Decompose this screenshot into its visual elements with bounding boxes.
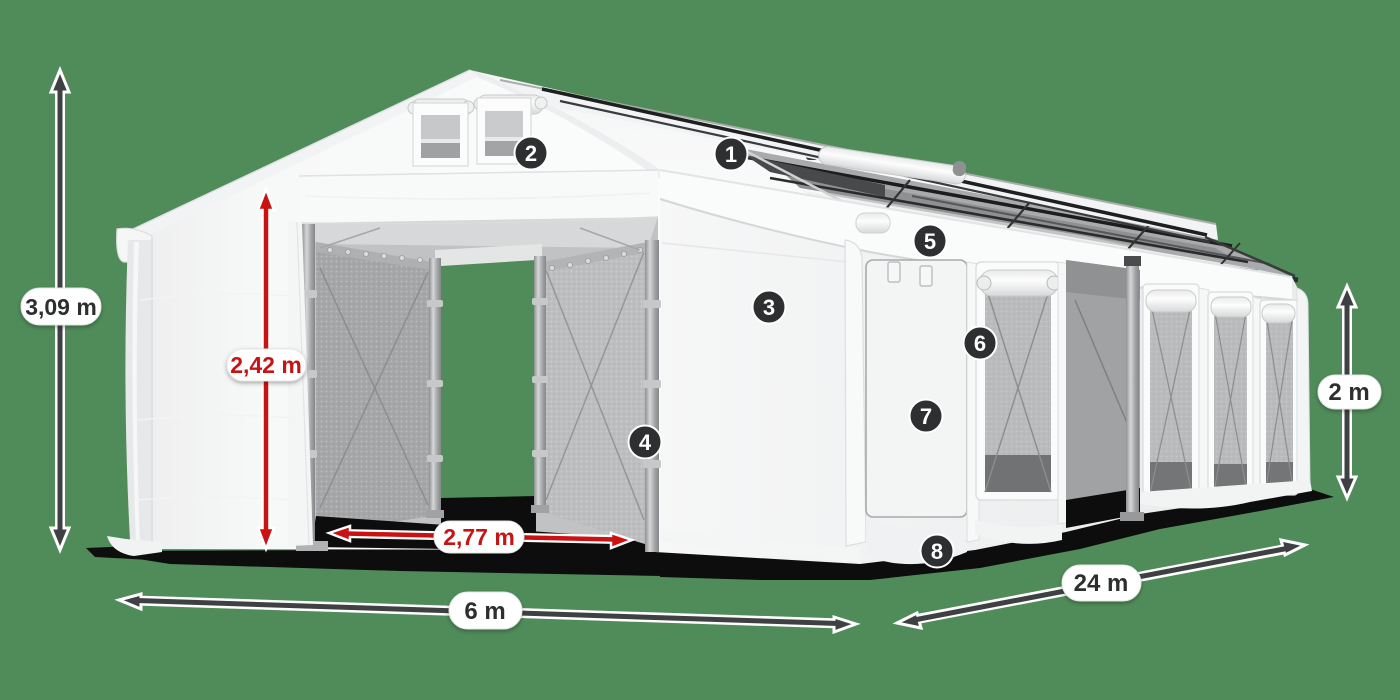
svg-text:3: 3 bbox=[763, 295, 775, 320]
svg-text:2,42 m: 2,42 m bbox=[230, 352, 302, 378]
svg-text:3,09 m: 3,09 m bbox=[25, 294, 97, 320]
svg-text:24 m: 24 m bbox=[1074, 570, 1129, 597]
svg-text:2,77 m: 2,77 m bbox=[443, 524, 515, 550]
svg-text:8: 8 bbox=[931, 539, 943, 564]
svg-text:4: 4 bbox=[639, 430, 652, 455]
svg-text:1: 1 bbox=[725, 142, 737, 167]
svg-text:5: 5 bbox=[924, 229, 936, 254]
svg-text:6 m: 6 m bbox=[464, 598, 505, 625]
svg-text:7: 7 bbox=[920, 404, 932, 429]
svg-text:2 m: 2 m bbox=[1328, 379, 1369, 406]
svg-text:2: 2 bbox=[525, 141, 537, 166]
svg-text:6: 6 bbox=[974, 331, 986, 356]
